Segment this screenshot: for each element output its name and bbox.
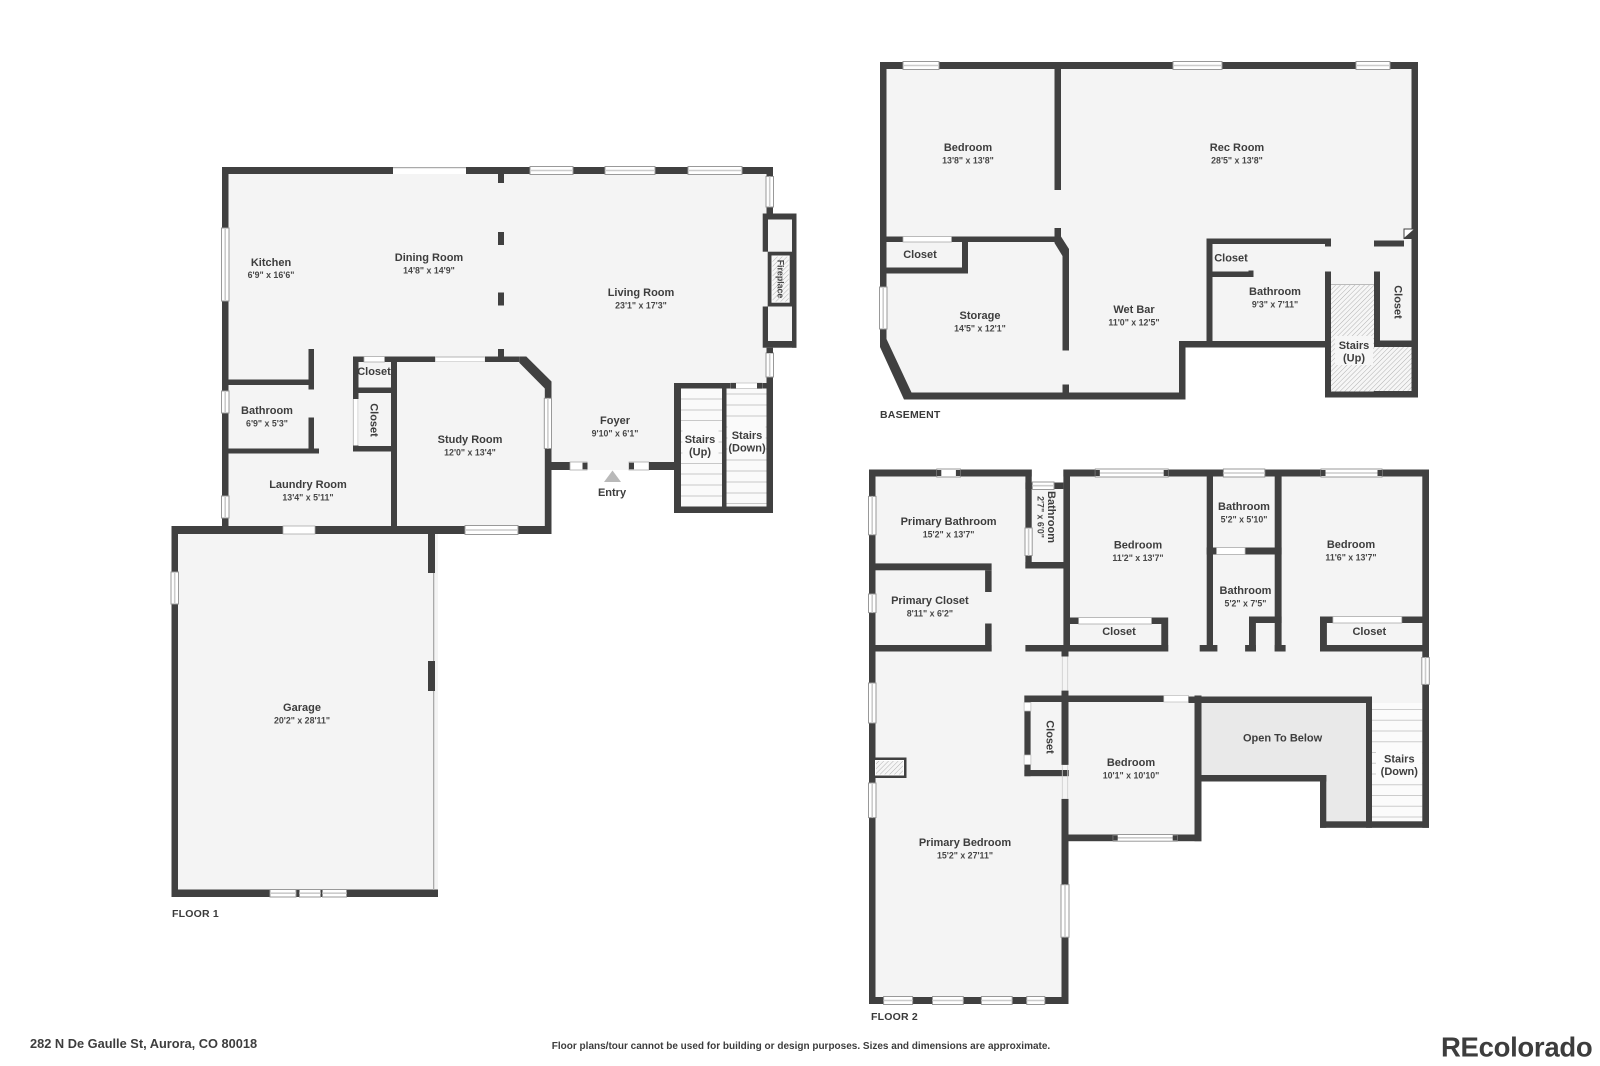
svg-text:REcolorado: REcolorado [1441, 1032, 1592, 1063]
svg-text:Closet: Closet [1044, 720, 1056, 754]
svg-text:Study Room: Study Room [438, 434, 503, 446]
svg-text:(Down): (Down) [1381, 766, 1419, 778]
svg-text:Bedroom: Bedroom [1107, 757, 1156, 769]
svg-text:Dining Room: Dining Room [395, 252, 464, 264]
svg-text:6'9" x 16'6": 6'9" x 16'6" [248, 270, 295, 280]
svg-text:Entry: Entry [598, 487, 627, 499]
svg-text:Bathroom: Bathroom [1220, 585, 1272, 597]
svg-text:Living Room: Living Room [608, 287, 675, 299]
svg-text:11'0" x 12'5": 11'0" x 12'5" [1108, 318, 1159, 328]
svg-text:28'5" x 13'8": 28'5" x 13'8" [1211, 156, 1263, 166]
svg-text:Primary Closet: Primary Closet [891, 595, 969, 607]
svg-text:20'2" x 28'11": 20'2" x 28'11" [274, 716, 330, 726]
svg-text:15'2" x 27'11": 15'2" x 27'11" [937, 851, 993, 861]
svg-text:Bedroom: Bedroom [944, 142, 993, 154]
svg-text:5'2" x 5'10": 5'2" x 5'10" [1221, 515, 1268, 525]
svg-text:Garage: Garage [283, 702, 321, 714]
svg-text:Stairs: Stairs [1384, 754, 1415, 766]
svg-text:11'6" x 13'7": 11'6" x 13'7" [1325, 553, 1376, 563]
svg-text:Closet: Closet [1102, 626, 1136, 638]
svg-text:Bathroom: Bathroom [1249, 286, 1301, 298]
svg-text:Bathroom: Bathroom [241, 405, 293, 417]
svg-text:Bathroom: Bathroom [1045, 491, 1057, 543]
svg-text:2'7" x 6'0": 2'7" x 6'0" [1036, 496, 1046, 538]
svg-text:Closet: Closet [1352, 626, 1386, 638]
svg-text:(Up): (Up) [689, 447, 711, 459]
svg-text:FLOOR 1: FLOOR 1 [172, 908, 219, 920]
svg-text:23'1" x 17'3": 23'1" x 17'3" [615, 301, 667, 311]
svg-text:Bathroom: Bathroom [1218, 501, 1270, 513]
svg-text:Closet: Closet [368, 403, 380, 437]
svg-text:BASEMENT: BASEMENT [880, 409, 941, 421]
svg-text:8'11" x 6'2": 8'11" x 6'2" [907, 609, 953, 619]
svg-text:(Up): (Up) [1343, 353, 1365, 365]
svg-text:Wet Bar: Wet Bar [1113, 304, 1155, 316]
svg-text:15'2" x 13'7": 15'2" x 13'7" [923, 530, 975, 540]
svg-text:Primary Bathroom: Primary Bathroom [901, 516, 997, 528]
svg-text:Storage: Storage [960, 310, 1001, 322]
svg-text:FLOOR 2: FLOOR 2 [871, 1011, 918, 1023]
svg-text:Floor plans/tour cannot be use: Floor plans/tour cannot be used for buil… [552, 1041, 1051, 1052]
svg-text:9'3" x 7'11": 9'3" x 7'11" [1252, 300, 1298, 310]
svg-text:14'5" x 12'1": 14'5" x 12'1" [954, 324, 1006, 334]
svg-text:Stairs: Stairs [1339, 340, 1370, 352]
svg-text:Stairs: Stairs [732, 430, 763, 442]
svg-text:14'8" x 14'9": 14'8" x 14'9" [403, 266, 455, 276]
svg-text:282 N De Gaulle St, Aurora, CO: 282 N De Gaulle St, Aurora, CO 80018 [30, 1036, 257, 1051]
svg-text:10'1" x 10'10": 10'1" x 10'10" [1103, 771, 1160, 781]
svg-text:Bedroom: Bedroom [1327, 539, 1376, 551]
svg-text:Primary Bedroom: Primary Bedroom [919, 837, 1012, 849]
svg-text:Closet: Closet [1392, 285, 1404, 319]
svg-text:Open To Below: Open To Below [1243, 733, 1323, 745]
svg-text:5'2" x 7'5": 5'2" x 7'5" [1225, 599, 1267, 609]
svg-text:Fireplace: Fireplace [776, 260, 786, 299]
svg-text:Bedroom: Bedroom [1114, 540, 1163, 552]
svg-text:(Down): (Down) [728, 443, 766, 455]
svg-text:11'2" x 13'7": 11'2" x 13'7" [1112, 553, 1163, 563]
svg-text:12'0" x 13'4": 12'0" x 13'4" [444, 448, 496, 458]
svg-text:Closet: Closet [357, 366, 391, 378]
svg-text:Closet: Closet [903, 249, 937, 261]
svg-text:Laundry Room: Laundry Room [269, 479, 347, 491]
svg-text:6'9" x 5'3": 6'9" x 5'3" [246, 419, 288, 429]
svg-text:Stairs: Stairs [685, 434, 716, 446]
svg-text:Kitchen: Kitchen [251, 257, 292, 269]
svg-text:9'10" x 6'1": 9'10" x 6'1" [592, 429, 639, 439]
svg-text:Rec Room: Rec Room [1210, 142, 1265, 154]
svg-text:13'4" x 5'11": 13'4" x 5'11" [282, 493, 333, 503]
svg-text:Foyer: Foyer [600, 415, 631, 427]
svg-text:Closet: Closet [1214, 253, 1248, 265]
svg-text:13'8" x 13'8": 13'8" x 13'8" [942, 156, 994, 166]
